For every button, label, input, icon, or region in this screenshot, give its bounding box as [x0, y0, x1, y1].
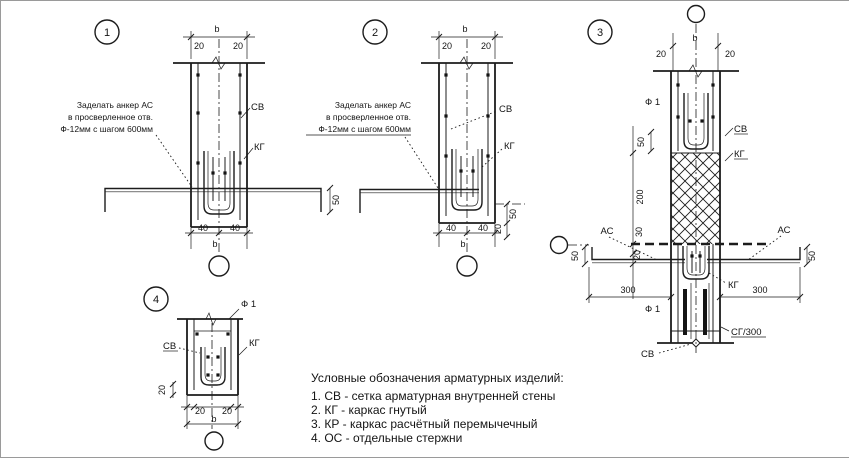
detail-4-section-marker-circle	[205, 432, 223, 450]
detail-2-dim-50: 50	[508, 209, 518, 219]
detail-2-dim-b-top: b	[462, 24, 467, 34]
detail-1-note-line1: Заделать анкер АС	[77, 100, 153, 110]
detail-3-label-cb-bottom: СВ	[641, 349, 654, 360]
detail-1-label-kg: КГ	[254, 142, 265, 153]
detail-3-dim-b: b	[692, 33, 697, 43]
legend-item-os: 4. ОС - отдельные стержни	[311, 431, 462, 445]
detail-3-label-ac-left: АС	[601, 226, 614, 237]
detail-1-badge-number: 1	[104, 27, 110, 39]
detail-2-dim-40-right: 40	[478, 223, 488, 233]
detail-3-badge-number: 3	[597, 27, 603, 39]
detail-2-dim-20-side: 20	[493, 224, 503, 234]
detail-1-dim-b-bottom: b	[212, 239, 217, 249]
detail-2-label-kg: КГ	[504, 141, 515, 152]
detail-3-dim-200: 200	[635, 189, 645, 204]
detail-1-section-marker-circle	[209, 256, 229, 276]
detail-1-dim-40-left: 40	[198, 223, 208, 233]
detail-4-dim-20-side: 20	[157, 385, 167, 395]
detail-2-section-marker-circle	[457, 256, 477, 276]
detail-3-dim-50-hook-left: 50	[570, 251, 580, 261]
detail-1-note-line2: в просверленное отв.	[68, 112, 153, 122]
detail-3-top-section-marker-circle	[688, 6, 705, 23]
detail-3: 3 b 20 20 Ф 1 50 200 30	[551, 6, 818, 361]
detail-3-label-kg-mid: КГ	[728, 280, 739, 291]
detail-1-dim-20-right: 20	[233, 41, 243, 51]
detail-2-dim-40-left: 40	[446, 223, 456, 233]
detail-3-dim-300-right: 300	[752, 285, 767, 295]
detail-4-label-cb: СВ	[163, 341, 176, 352]
legend-item-kg: 2. КГ - каркас гнутый	[311, 403, 427, 417]
detail-4-dim-20-left: 20	[195, 406, 205, 416]
detail-2: 2 b 20 20 50 20 40	[306, 20, 525, 276]
detail-3-dim-20-right: 20	[725, 49, 735, 59]
detail-1-dim-20-left: 20	[194, 41, 204, 51]
detail-4-badge-number: 4	[153, 294, 159, 306]
detail-2-dim-20-right: 20	[481, 41, 491, 51]
detail-1-dim-50-hook: 50	[331, 195, 341, 205]
detail-3-dim-50-upper: 50	[636, 137, 646, 147]
detail-3-left-section-marker-circle	[551, 237, 568, 254]
rebar-details-drawing: 1 b 20 20 50	[1, 1, 849, 457]
detail-1: 1 b 20 20 50	[60, 20, 341, 276]
detail-3-dim-50-hook-right: 50	[807, 251, 817, 261]
detail-1-dim-b-top: b	[214, 24, 219, 34]
detail-2-note-line3: Ф-12мм с шагом 600мм	[318, 124, 411, 134]
detail-3-label-ac-right: АС	[778, 225, 791, 236]
detail-2-dim-20-left: 20	[442, 41, 452, 51]
detail-2-note-line1: Заделать анкер АС	[335, 100, 411, 110]
detail-2-note-line2: в просверленное отв.	[326, 112, 411, 122]
detail-1-note-line3: Ф-12мм с шагом 600мм	[60, 124, 153, 134]
detail-4-dim-20-right: 20	[222, 406, 232, 416]
detail-3-dim-30: 30	[634, 227, 644, 237]
drawing-canvas: 1 b 20 20 50	[0, 0, 849, 458]
detail-2-dim-b-bottom: b	[460, 239, 465, 249]
legend: Условные обозначения арматурных изделий:…	[311, 371, 564, 445]
legend-item-kr: 3. КР - каркас расчётный перемычечный	[311, 417, 537, 431]
detail-3-label-cb-top: СВ	[734, 124, 747, 135]
detail-3-label-f1-top: Ф 1	[645, 97, 660, 108]
detail-1-dim-40-right: 40	[230, 223, 240, 233]
detail-2-label-cb: СВ	[499, 104, 512, 115]
detail-4-label-kg: КГ	[249, 338, 260, 349]
detail-3-label-f1-bottom: Ф 1	[645, 304, 660, 315]
legend-item-cb: 1. СВ - сетка арматурная внутренней стен…	[311, 389, 555, 403]
detail-2-badge-number: 2	[372, 27, 378, 39]
detail-3-dim-20-lower: 20	[632, 250, 642, 260]
detail-3-label-kg-top: КГ	[734, 149, 745, 160]
detail-4: 4 Ф 1 СВ КГ 20 20 20	[144, 287, 260, 450]
detail-4-label-f1: Ф 1	[241, 299, 256, 310]
detail-3-label-sg300: СГ/300	[731, 327, 762, 338]
detail-4-dim-b: b	[211, 414, 216, 424]
detail-3-dim-300-left: 300	[620, 285, 635, 295]
detail-3-dim-20-left: 20	[656, 49, 666, 59]
detail-1-label-cb: СВ	[251, 102, 264, 113]
legend-title: Условные обозначения арматурных изделий:	[311, 371, 564, 385]
